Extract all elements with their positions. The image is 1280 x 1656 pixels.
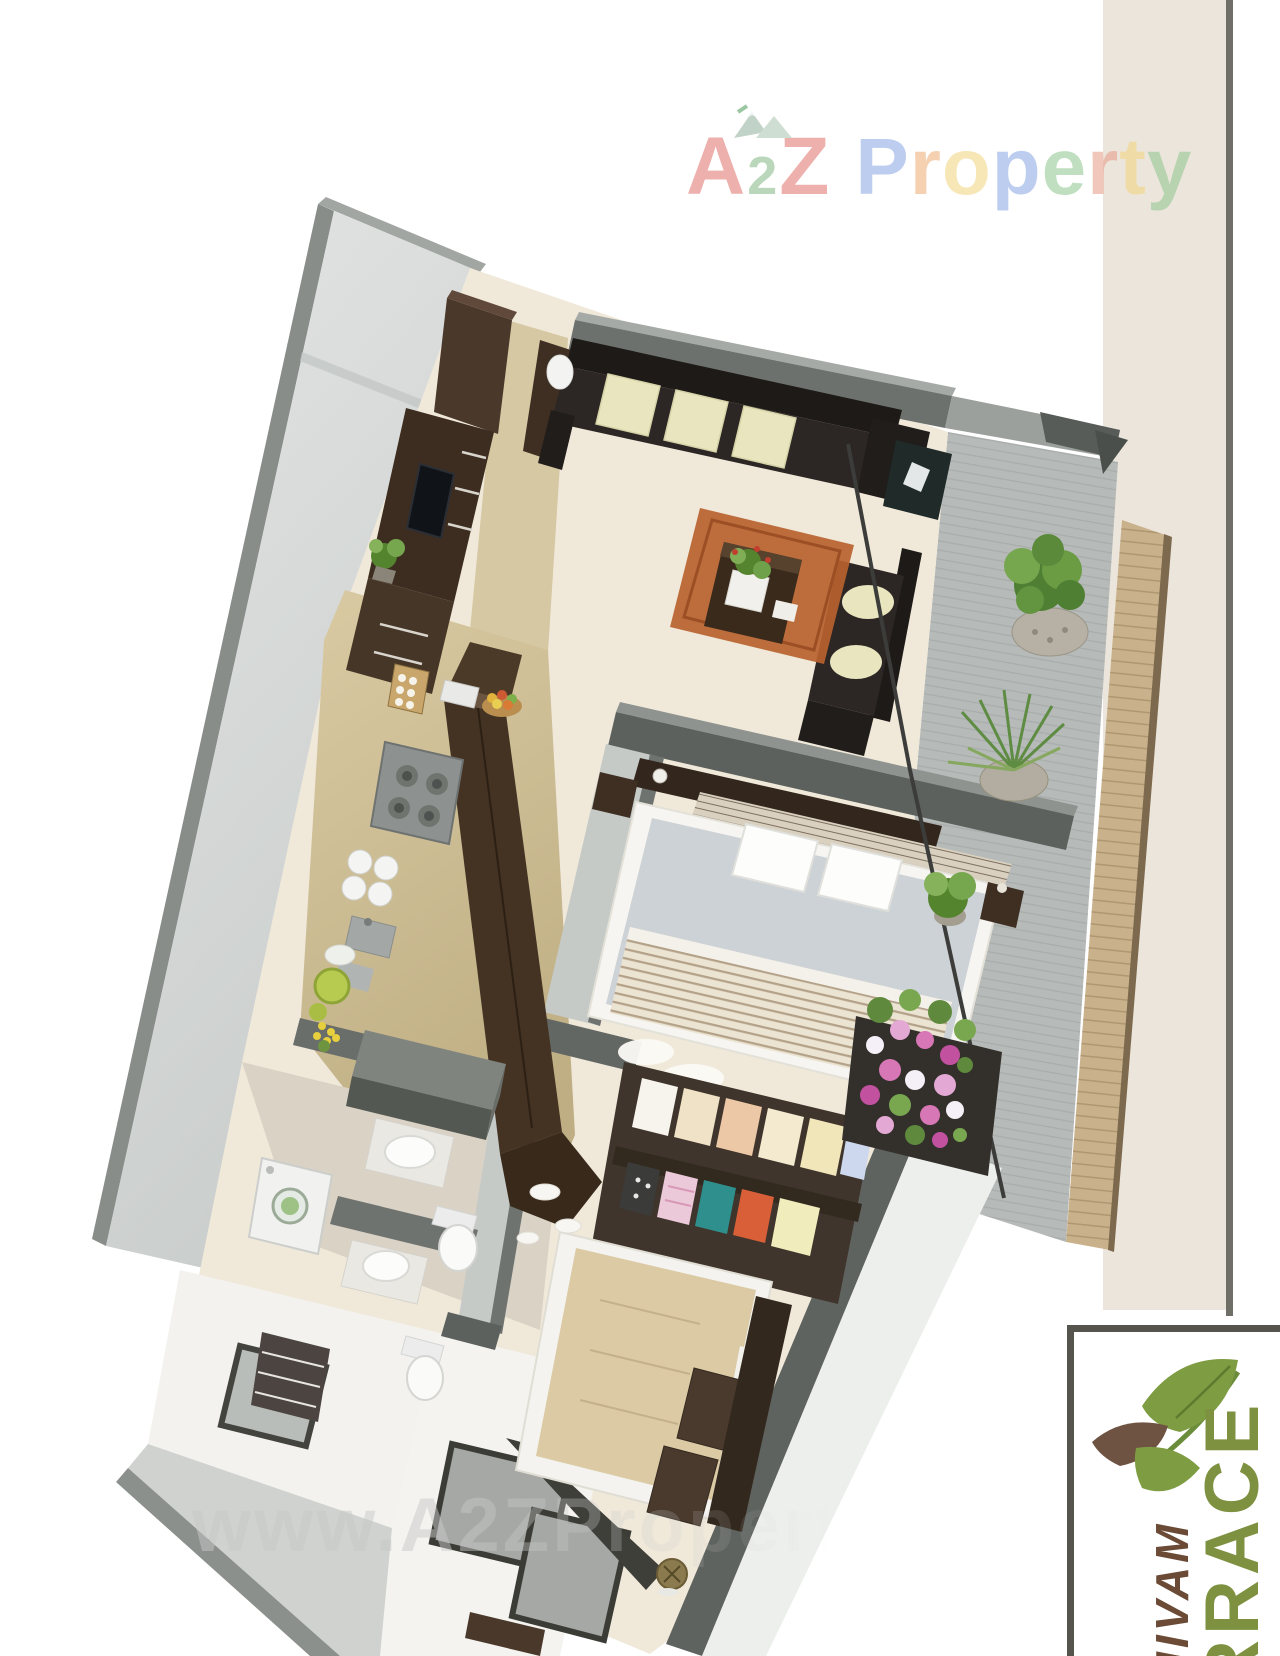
logo-word-property: Property: [855, 121, 1192, 213]
logo-letter: r: [910, 122, 942, 211]
gas-hob: [371, 742, 463, 844]
logo-letter: y: [1147, 122, 1193, 211]
washbasin: [385, 1136, 435, 1168]
a2z-property-logo: A2ZProperty: [686, 120, 1192, 214]
egg-crate: [388, 664, 429, 714]
washing-machine: [249, 1158, 332, 1254]
watermark-url: www.A2ZProperty: [192, 1482, 889, 1569]
logo-word-a2z: A2Z: [686, 120, 831, 214]
toilet: [407, 1356, 443, 1400]
logo-letter: t: [1119, 122, 1147, 211]
flower-vase: [547, 355, 573, 389]
logo-letter: 2: [747, 146, 779, 206]
developer-name-terrace: TERRACE: [1194, 1400, 1272, 1656]
developer-logo-box: SHIVAM TERRACE: [1067, 1325, 1280, 1656]
logo-letter: p: [992, 122, 1042, 211]
logo-letter: r: [1087, 122, 1119, 211]
clock: [653, 769, 667, 783]
brochure-page: www.A2ZProperty A2ZProperty SHIVAM TERRA…: [0, 0, 1280, 1656]
mountain-peaks-icon: [730, 104, 796, 140]
toilet: [439, 1225, 477, 1271]
developer-name-shivam: SHIVAM: [1148, 1521, 1196, 1656]
logo-letter: P: [855, 122, 909, 211]
logo-letter: o: [942, 122, 992, 211]
logo-letter: e: [1042, 122, 1088, 211]
washbasin: [363, 1251, 409, 1281]
